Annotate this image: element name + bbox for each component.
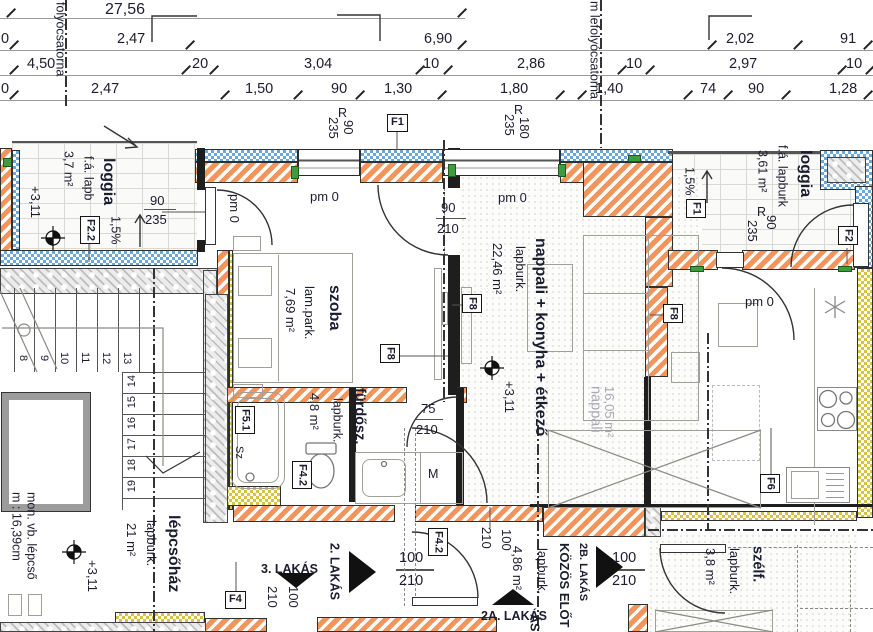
room-area: 4,8 m² <box>308 393 321 430</box>
stair-step <box>122 477 205 478</box>
section-line <box>153 268 155 632</box>
wall-insulation <box>205 618 267 632</box>
step-number: 18 <box>127 459 138 471</box>
dim: 10 <box>846 57 862 72</box>
dim-tick <box>683 90 693 100</box>
counterweight <box>28 594 42 616</box>
dim-tick <box>9 65 19 75</box>
floor-plan: 27,56 0 2,47 6,90 2,02 91 4,50 20 3,04 1… <box>0 0 873 632</box>
room-floor: lapburk. <box>145 520 158 566</box>
seal-mark <box>3 158 12 167</box>
pillow <box>238 338 272 368</box>
door-size: 210 <box>437 222 459 235</box>
tag-f4: F4 <box>225 591 246 609</box>
section-line <box>648 529 873 531</box>
dim: 90 <box>748 82 764 97</box>
washer-label: M <box>428 468 438 481</box>
tag-f1: F1 <box>686 199 706 218</box>
wall-partition <box>225 486 281 506</box>
dim-total: 27,56 <box>105 2 145 18</box>
stair-wall <box>205 294 228 523</box>
washbasin <box>362 459 406 497</box>
nightstand <box>233 236 261 251</box>
tag-f8: F8 <box>380 344 400 363</box>
pillow <box>238 266 272 296</box>
loggia-left-parapet <box>0 250 198 266</box>
window-mark: 90 <box>342 120 355 134</box>
room-area: 22,46 m² <box>491 243 504 294</box>
room-name: loggia <box>100 158 116 205</box>
side-table <box>671 352 700 383</box>
door-size: 235 <box>746 220 759 242</box>
stair-step <box>139 288 140 372</box>
stair-step <box>55 288 56 372</box>
room-area: 4,86 m² <box>511 546 524 590</box>
wall-corner-block <box>583 162 673 217</box>
dim-tick <box>209 65 219 75</box>
tag-f4-2: F4.2 <box>292 461 312 489</box>
wall-insulation <box>360 162 443 183</box>
door-size: 100 <box>399 551 423 566</box>
section-line <box>707 333 709 529</box>
dim: 6,90 <box>424 32 452 47</box>
dim-tick <box>781 90 791 100</box>
room-floor: f.á. lapburk <box>776 145 789 207</box>
dim-line <box>0 18 465 19</box>
slope-mark: 1,5% <box>683 167 696 196</box>
stair-step <box>122 393 205 394</box>
seal-mark <box>558 164 566 177</box>
dim-tick <box>707 40 717 50</box>
step-number: 8 <box>17 355 28 361</box>
drain-label: m lefolyócsatorna <box>588 1 601 99</box>
dim-tick <box>723 90 733 100</box>
stair-step <box>122 456 205 457</box>
room-floor: lapburk. <box>728 548 741 594</box>
stair-cut-circle <box>18 324 30 336</box>
step-number: 19 <box>127 480 138 492</box>
window-180-235 <box>443 149 560 176</box>
room-name: nappali + konyha + étkező <box>532 238 548 436</box>
counterweight <box>8 594 22 616</box>
dim-tick <box>9 40 19 50</box>
toilet-bowl <box>308 454 334 488</box>
drain-label: folyócsatorna <box>54 2 67 76</box>
fraction-line <box>436 218 466 219</box>
stair-step <box>122 372 205 373</box>
sink-basin <box>791 471 819 499</box>
wall-insulation <box>233 505 395 522</box>
tag-f6: F6 <box>760 474 780 493</box>
wall-masonry <box>360 149 443 162</box>
room-floor: f.á. lapb <box>82 156 95 200</box>
apartment-label-cut: ÁS <box>528 614 541 631</box>
stair-step <box>14 288 15 372</box>
loggia-door-leaf <box>205 187 216 245</box>
dim: 20 <box>192 57 208 72</box>
room-floor: lapburk. <box>514 246 527 292</box>
section-line <box>443 140 445 402</box>
wall-insulation <box>195 162 298 183</box>
dim: 1,80 <box>500 82 528 97</box>
apartment-label: 2. LAKÁS <box>328 543 341 600</box>
room-floor: lam.park. <box>303 286 316 339</box>
window-mark: 235 <box>503 114 516 136</box>
window-mark: 235 <box>327 117 340 139</box>
level-mark: +3,11 <box>86 560 99 592</box>
dim-line <box>0 75 873 76</box>
door-size: 210 <box>612 574 636 589</box>
apartment-label: 2B. LAKÁS <box>577 543 588 601</box>
seal-mark <box>690 266 704 272</box>
door-size: 90 <box>441 201 455 214</box>
seal-mark <box>838 266 852 272</box>
dim-line <box>0 100 873 101</box>
level-symbol <box>62 540 86 564</box>
dim-tick <box>863 40 873 50</box>
dim-tick <box>457 40 467 50</box>
door-size: 90 <box>150 194 164 207</box>
dim-tick <box>865 65 873 75</box>
door-jamb <box>197 240 205 252</box>
dim: 2,47 <box>91 82 119 97</box>
stair-step <box>122 414 205 415</box>
door-arc <box>378 185 448 255</box>
room-floor: lapburk. <box>536 548 549 594</box>
dim-tick <box>577 90 587 100</box>
stove <box>817 387 857 431</box>
stair-step <box>97 288 98 372</box>
dim: 0 <box>1 82 9 97</box>
ghost-wall-dashed <box>797 545 798 632</box>
door-mark: pm 0 <box>745 295 774 308</box>
stair-step <box>122 498 205 499</box>
dim-tick <box>437 90 447 100</box>
tv-board <box>434 268 442 380</box>
door-size: 210 <box>416 423 438 436</box>
balcony-door-leaf <box>716 252 744 268</box>
door-size: 75 <box>421 402 435 415</box>
room-name: szélf. <box>750 546 765 582</box>
dining-zone <box>548 430 761 508</box>
wall-partition <box>857 268 873 518</box>
slope-mark: 1,5% <box>109 216 122 245</box>
wall-masonry <box>560 149 673 162</box>
tag-f8: F8 <box>462 294 482 313</box>
step-number: 11 <box>79 352 90 363</box>
dim: 2,47 <box>117 32 145 47</box>
terrace-band <box>0 622 206 632</box>
window-90-235 <box>298 149 360 176</box>
stair-step <box>118 288 119 372</box>
dim: 0 <box>1 32 9 47</box>
dim-tick <box>220 90 230 100</box>
window-mark: 180 <box>518 117 531 139</box>
room-area: 3,61 m² <box>756 150 769 192</box>
room-name: fürdősz. <box>352 388 367 444</box>
tag-f2-2: F2.2 <box>80 216 100 244</box>
step-number: 9 <box>38 355 49 361</box>
loggia-rail <box>12 141 197 143</box>
tag-f1: F1 <box>387 114 408 132</box>
wall-bracket <box>152 16 197 42</box>
door-size: 210 <box>480 527 493 549</box>
tag-f2: F2 <box>838 226 858 245</box>
wall-partition <box>661 511 857 521</box>
dim: 91 <box>840 32 856 47</box>
room-area: 7,69 m² <box>284 288 297 332</box>
dining-zone <box>655 610 773 632</box>
dim: 10 <box>423 57 439 72</box>
ghost-room-area: 16,05 m² <box>603 386 616 437</box>
door-mark: pm 0 <box>310 190 339 203</box>
room-name: lépcsőház <box>165 515 181 592</box>
boiler-icon <box>825 296 845 318</box>
room-area: 3,8 m² <box>704 548 717 585</box>
room-name: loggia <box>797 150 813 197</box>
ghost-room-name: nappali <box>588 386 603 433</box>
stair-note: mon. vb. lépcső <box>25 492 38 580</box>
seal-mark <box>291 166 299 179</box>
seal-mark <box>448 164 456 177</box>
room-area: 21 m² <box>125 523 138 556</box>
dim: 90 <box>331 82 347 97</box>
ghost-wall-dashed <box>800 608 873 609</box>
ghost-wall-dashed <box>850 545 851 632</box>
room-area: 3,7 m² <box>62 151 75 186</box>
dim: 1,28 <box>829 82 857 97</box>
wall-block <box>543 507 645 537</box>
wall-insulation <box>317 617 497 632</box>
apartment-arrow-up <box>492 589 534 605</box>
section-line <box>537 425 539 632</box>
dim-tick <box>181 65 191 75</box>
level-mark: +3,11 <box>29 186 42 218</box>
door-size: 90 <box>765 215 778 229</box>
dim-tick <box>555 90 565 100</box>
room-floor: lapburk. <box>331 398 344 442</box>
door-size: 210 <box>399 574 423 589</box>
dim-tick <box>6 8 16 18</box>
dim: 2,86 <box>517 57 545 72</box>
dim: 3,04 <box>304 57 332 72</box>
door-mark: pm 0 <box>498 191 527 204</box>
level-mark: +3,11 <box>503 381 516 413</box>
dim: 2,02 <box>726 32 754 47</box>
dim-tick <box>793 40 803 50</box>
door-size: 100 <box>287 586 300 608</box>
door-leaf <box>412 597 478 606</box>
seal-mark <box>628 155 641 162</box>
dim: 1,50 <box>245 82 273 97</box>
wall-partition-szoba <box>448 255 460 395</box>
dim-tick <box>645 65 655 75</box>
step-number: 17 <box>127 438 138 450</box>
planter-fill <box>827 157 866 183</box>
fraction-line <box>415 419 443 420</box>
dim: 4,50 <box>27 57 55 72</box>
armchair <box>718 303 758 347</box>
stair-step <box>76 288 77 372</box>
fraction-line <box>144 209 176 210</box>
wall-masonry <box>12 150 20 250</box>
step-number: 16 <box>127 417 138 429</box>
apartment-arrow-right <box>349 551 376 593</box>
door-size: 210 <box>266 586 279 608</box>
dim-tick <box>863 90 873 100</box>
stair-step <box>34 288 35 372</box>
dim: 2,97 <box>729 57 757 72</box>
door-jamb <box>197 148 205 190</box>
wall-insulation <box>415 505 543 522</box>
step-number: 14 <box>127 375 138 387</box>
door-mark: pm 0 <box>228 194 241 223</box>
dim: 10 <box>626 57 642 72</box>
dim-tick <box>443 65 453 75</box>
dim-tick <box>185 40 195 50</box>
dim-tick <box>355 90 365 100</box>
stair-note: m : 16,39cm <box>10 492 23 561</box>
dim-tick <box>9 90 19 100</box>
step-number: 15 <box>127 396 138 408</box>
tag-f4-2: F4.2 <box>428 528 448 556</box>
tub-label: Sz <box>233 446 244 459</box>
dim-tick <box>457 8 467 18</box>
door-size: 235 <box>145 213 167 226</box>
step-number: 13 <box>121 352 132 364</box>
door-size: 100 <box>612 551 636 566</box>
wall-pillar <box>645 507 661 537</box>
step-number: 12 <box>100 352 111 364</box>
dim: 1,30 <box>384 82 412 97</box>
dim-line <box>0 50 873 51</box>
step-number: 10 <box>58 352 69 364</box>
toilet-tank <box>306 443 336 454</box>
dim-tick <box>293 90 303 100</box>
tag-f5-1: F5.1 <box>235 406 255 434</box>
drainboard <box>826 473 844 499</box>
stair-step <box>122 435 205 436</box>
wall-masonry <box>195 149 298 162</box>
dim: 74 <box>700 82 716 97</box>
tag-f8: F8 <box>663 304 683 323</box>
apartment-label: KÖZÖS ELŐT <box>558 543 571 628</box>
wall-pillar <box>628 604 648 632</box>
room-name: szoba <box>326 285 342 330</box>
